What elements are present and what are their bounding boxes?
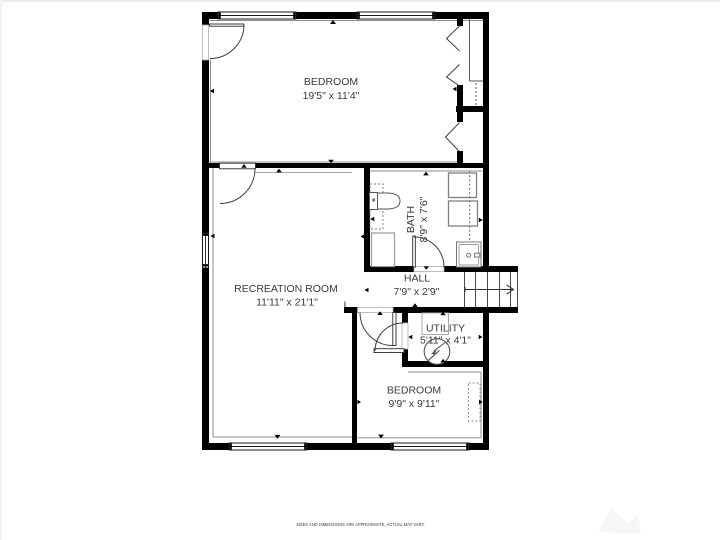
svg-text:8'9" x 7'6": 8'9" x 7'6"	[418, 196, 430, 242]
svg-text:HALL: HALL	[404, 273, 430, 285]
svg-text:5'11" x 4'1": 5'11" x 4'1"	[420, 335, 471, 347]
svg-text:7'9" x 2'9": 7'9" x 2'9"	[394, 286, 440, 298]
svg-text:BEDROOM: BEDROOM	[387, 385, 441, 397]
svg-text:UTILITY: UTILITY	[426, 323, 465, 335]
svg-text:RECREATION ROOM: RECREATION ROOM	[234, 283, 338, 295]
svg-text:11'11" x 21'1": 11'11" x 21'1"	[256, 297, 318, 309]
svg-text:BEDROOM: BEDROOM	[304, 76, 358, 88]
svg-text:19'5" x 11'4": 19'5" x 11'4"	[303, 90, 360, 102]
svg-text:9'9" x 9'11": 9'9" x 9'11"	[389, 398, 440, 410]
svg-text:SIZES AND DIMENSIONS ARE APPRO: SIZES AND DIMENSIONS ARE APPROXIMATE, AC…	[296, 522, 425, 527]
svg-text:BATH: BATH	[405, 206, 417, 233]
